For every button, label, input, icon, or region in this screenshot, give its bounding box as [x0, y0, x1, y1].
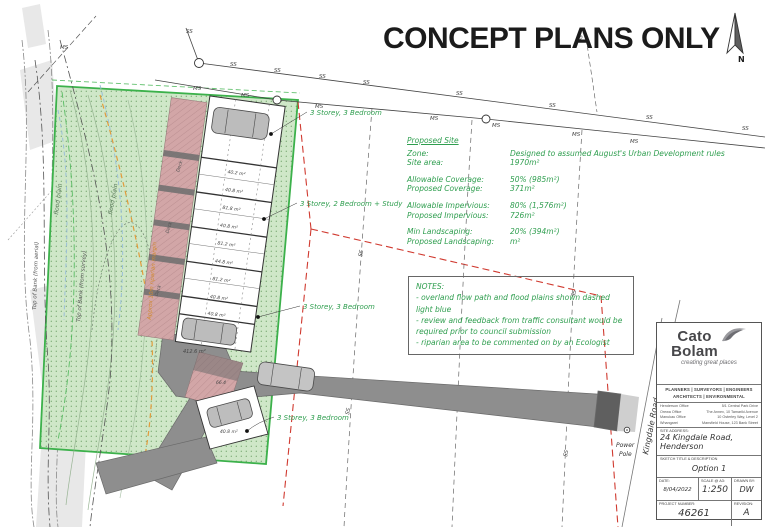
drawn-by-label: DRAWN BY: — [734, 479, 759, 483]
offices-list: Henderson Office 5/1 Central Park Drive … — [657, 403, 761, 428]
site-address-line1: 24 Kingdale Road, — [660, 433, 758, 442]
ms-label: MS — [315, 104, 324, 110]
notes-box: NOTES: - overland flow path and flood pl… — [408, 276, 634, 355]
proposed-site-row: Site area: 1970m² — [407, 158, 752, 168]
ps-label: Allowable Coverage: — [407, 175, 510, 185]
power-pole-label: Power — [616, 442, 635, 449]
date-label: DATE: — [659, 479, 696, 483]
proposed-site-heading: Proposed Site — [407, 136, 752, 146]
site-plan-drawing: 40.2 m² 40.8 m² 81.8 m² 40.8 m² 81.2 m² … — [0, 0, 768, 527]
date-value: 8/04/2022 — [659, 487, 696, 493]
ps-label: Min Landscaping: — [407, 227, 510, 237]
ps-value: 371m² — [510, 184, 752, 194]
notes-line: - riparian area to be commented on by an… — [416, 337, 626, 348]
proposed-site-row: Allowable Coverage: 50% (985m²) — [407, 175, 752, 185]
area-label: 66.4 — [216, 380, 226, 386]
power-pole-label: Pole — [619, 451, 632, 458]
ss-label: SS — [742, 126, 749, 132]
office-address: Mansfield House, 123 Bank Street — [702, 421, 758, 427]
office-name: Whangarei — [660, 421, 678, 427]
area-label: 412.6 m² — [183, 349, 206, 355]
ps-value: Designed to assumed August's Urban Devel… — [510, 149, 752, 159]
revision-value: A — [734, 508, 759, 518]
ps-value: m² — [510, 237, 752, 247]
ps-label: Proposed Landscaping: — [407, 237, 510, 247]
project-number-value: 46261 — [659, 508, 729, 519]
notes-line: light blue — [416, 304, 626, 315]
company-logo: Cato Bolam creating great places — [657, 329, 761, 385]
notes-heading: NOTES: — [416, 281, 626, 292]
unit-label: 3 Storey, 3 Bedroom — [277, 414, 349, 422]
date-cell: DATE: 8/04/2022 — [657, 478, 699, 500]
project-number-label: PROJECT NUMBER: — [659, 502, 729, 506]
proposed-site-row: Proposed Landscaping: m² — [407, 237, 752, 247]
proposed-site-row: Proposed Coverage: 371m² — [407, 184, 752, 194]
ps-value: 726m² — [510, 211, 752, 221]
leaf-icon — [721, 327, 747, 347]
office-row: Whangarei Mansfield House, 123 Bank Stre… — [660, 421, 758, 427]
unit-label: 3 Storey, 2 Bedroom + Study — [300, 200, 403, 208]
services-line1: PLANNERS | SURVEYORS | ENGINEERS — [657, 386, 761, 393]
title-block: Cato Bolam creating great places PLANNER… — [656, 322, 762, 520]
ms-label: MS — [430, 116, 439, 122]
ss-label: SS — [563, 449, 570, 457]
scale-label: SCALE @ A3: — [701, 479, 729, 483]
ps-label: Site area: — [407, 158, 510, 168]
revision-cell: REVISION: A — [732, 501, 761, 526]
ps-value: 1970m² — [510, 158, 752, 168]
site-address-line2: Henderson — [660, 442, 758, 451]
ss-label: SS — [549, 103, 556, 109]
ss-label: SS — [363, 80, 370, 86]
proposed-site-row: Zone: Designed to assumed August's Urban… — [407, 149, 752, 159]
ps-label: Proposed Impervious: — [407, 211, 510, 221]
concept-plan-sheet: 40.2 m² 40.8 m² 81.8 m² 40.8 m² 81.2 m² … — [0, 0, 768, 527]
ms-label: MS — [60, 45, 69, 51]
drawn-by-cell: DRAWN BY: DW — [732, 478, 761, 500]
ps-value: 50% (985m²) — [510, 175, 752, 185]
north-arrow-icon: N — [727, 13, 745, 64]
ss-label: SS — [319, 74, 326, 80]
sketch-title-label: SKETCH TITLE & DESCRIPTION — [660, 457, 758, 461]
brand-name-line1: Cato — [671, 329, 718, 344]
north-label: N — [738, 55, 745, 64]
ps-value: 80% (1,576m²) — [510, 201, 752, 211]
services-lines: PLANNERS | SURVEYORS | ENGINEERS ARCHITE… — [657, 385, 761, 403]
proposed-site-row: Min Landscaping: 20% (394m²) — [407, 227, 752, 237]
project-number-cell: PROJECT NUMBER: 46261 — [657, 501, 732, 526]
sketch-title-value: Option 1 — [660, 464, 758, 473]
ps-label: Proposed Coverage: — [407, 184, 510, 194]
proposed-site-row: Proposed Impervious: 726m² — [407, 211, 752, 221]
revision-label: REVISION: — [734, 502, 759, 506]
notes-line: - overland flow path and flood plains sh… — [416, 292, 626, 303]
drawn-by-value: DW — [734, 485, 759, 494]
manhole-icon — [482, 115, 490, 123]
ss-label: SS — [358, 249, 365, 257]
proposed-site-row: Allowable Impervious: 80% (1,576m²) — [407, 201, 752, 211]
ms-label: MS — [492, 123, 501, 129]
ss-label: SS — [646, 115, 653, 121]
manhole-icon — [273, 96, 281, 104]
project-revision-row: PROJECT NUMBER: 46261 REVISION: A — [657, 501, 761, 526]
services-line2: ARCHITECTS | ENVIRONMENTAL — [657, 393, 761, 400]
ps-value: 20% (394m²) — [510, 227, 752, 237]
date-scale-drawn-row: DATE: 8/04/2022 SCALE @ A3: 1:250 DRAWN … — [657, 478, 761, 501]
scale-cell: SCALE @ A3: 1:250 — [699, 478, 732, 500]
area-label: 40.8 m² — [220, 429, 238, 435]
ss-label: SS — [456, 91, 463, 97]
proposed-site-panel: Proposed Site Zone: Designed to assumed … — [407, 136, 752, 246]
ps-label: Zone: — [407, 149, 510, 159]
scale-value: 1:250 — [701, 485, 729, 495]
brand-name-line2: Bolam — [671, 344, 718, 359]
brand-tagline: creating great places — [657, 360, 761, 366]
ps-label: Allowable Impervious: — [407, 201, 510, 211]
ms-label: MS — [241, 93, 250, 99]
ss-label: SS — [186, 29, 193, 35]
ss-label: SS — [230, 62, 237, 68]
page-title: CONCEPT PLANS ONLY — [383, 22, 720, 56]
ms-label: MS — [193, 86, 202, 92]
unit-label: 3 Storey, 3 Bedroom — [310, 109, 382, 117]
site-address-section: SITE ADDRESS: 24 Kingdale Road, Henderso… — [657, 428, 761, 456]
sketch-title-section: SKETCH TITLE & DESCRIPTION Option 1 — [657, 456, 761, 478]
manhole-icon — [195, 59, 204, 68]
ss-label: SS — [274, 68, 281, 74]
notes-line: - review and feedback from traffic consu… — [416, 315, 626, 326]
notes-line: required prior to council submission — [416, 326, 626, 337]
unit-label: 3 Storey, 3 Bedroom — [303, 303, 375, 311]
